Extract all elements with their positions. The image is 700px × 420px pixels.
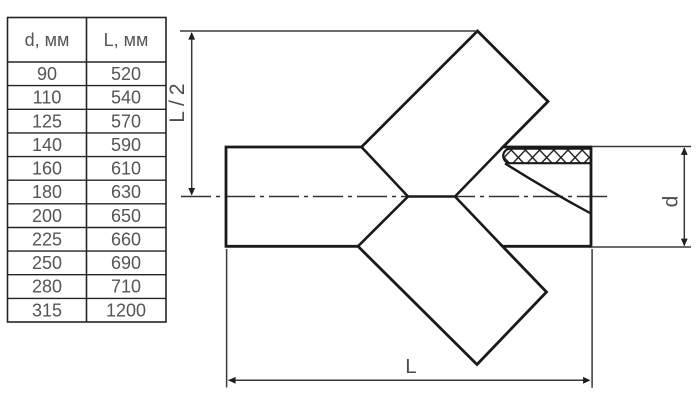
svg-text:d: d [659,196,682,208]
svg-text:225: 225 [32,230,62,250]
svg-text:610: 610 [111,159,141,179]
svg-text:L/2: L/2 [166,78,189,122]
svg-text:315: 315 [32,300,62,320]
svg-text:d, мм: d, мм [25,30,70,50]
svg-text:690: 690 [111,253,141,273]
svg-text:L, мм: L, мм [104,30,149,50]
svg-text:180: 180 [32,182,62,202]
svg-text:110: 110 [33,88,62,108]
svg-text:200: 200 [32,206,62,226]
svg-text:540: 540 [111,88,141,108]
svg-text:L: L [405,355,416,378]
svg-text:1200: 1200 [106,300,146,320]
svg-text:650: 650 [111,206,141,226]
svg-text:90: 90 [37,64,57,84]
svg-text:280: 280 [32,277,62,297]
svg-text:250: 250 [32,253,62,273]
svg-text:160: 160 [32,159,62,179]
svg-text:630: 630 [111,182,141,202]
svg-text:125: 125 [32,111,62,131]
svg-text:660: 660 [111,230,141,250]
svg-text:570: 570 [111,111,141,131]
svg-text:140: 140 [32,135,62,155]
svg-text:590: 590 [111,135,141,155]
svg-text:520: 520 [111,64,141,84]
svg-text:710: 710 [111,277,141,297]
